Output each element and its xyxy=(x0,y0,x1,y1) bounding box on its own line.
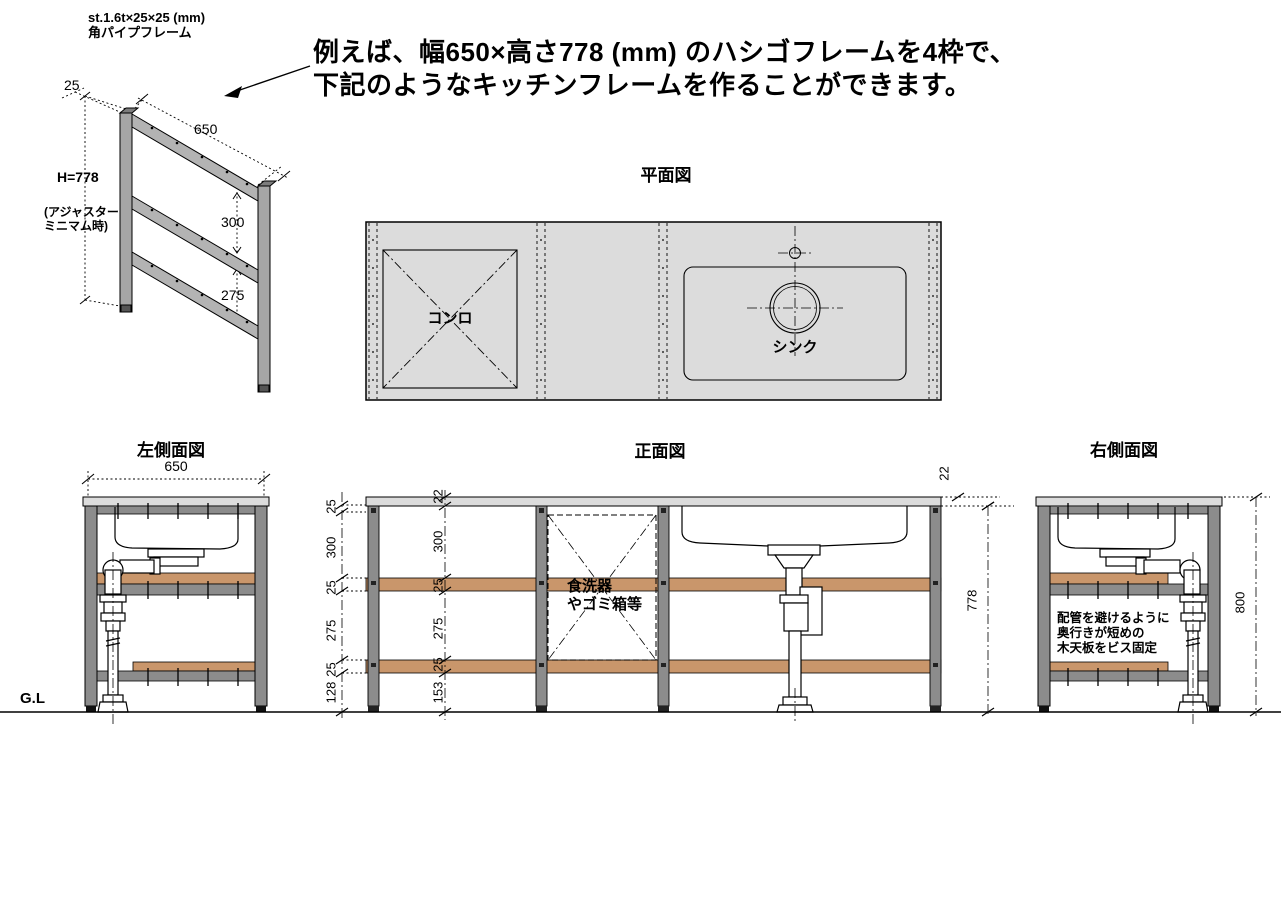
front-inner-153: 153 xyxy=(431,671,446,715)
counter-thickness-dim: 22 xyxy=(937,452,952,496)
sink-label: シンク xyxy=(772,336,817,357)
front-dim-275: 275 xyxy=(324,609,339,653)
iso-height-dim: H=778 xyxy=(57,169,99,185)
leader-arrow xyxy=(224,66,310,98)
iso-frame-drawing xyxy=(62,88,290,392)
piping-note: 配管を避けるように 奥行きが短めの 木天板をビス固定 xyxy=(1057,611,1170,656)
front-inner-25a: 25 xyxy=(431,564,446,608)
front-inner-22: 22 xyxy=(431,475,446,519)
front-dim-25a: 25 xyxy=(324,485,339,529)
front-dim-128: 128 xyxy=(324,671,339,715)
right-view-title: 右側面図 xyxy=(1090,436,1158,461)
front-dim-300: 300 xyxy=(324,526,339,570)
left-view-width-dim: 650 xyxy=(164,458,187,474)
heading-line1: 例えば、幅650×高さ778 (mm) のハシゴフレームを4枠で、 xyxy=(313,36,1016,69)
front-inner-300: 300 xyxy=(431,520,446,564)
plan-view-title: 平面図 xyxy=(641,161,692,186)
front-sink xyxy=(682,506,907,712)
pipe-spec-line2: 角パイプフレーム xyxy=(88,25,205,40)
left-side-view-drawing xyxy=(82,471,270,726)
heading-line2: 下記のようなキッチンフレームを作ることができます。 xyxy=(313,69,1016,102)
overall-height-dim: 800 xyxy=(1233,581,1248,625)
page-heading: 例えば、幅650×高さ778 (mm) のハシゴフレームを4枠で、 下記のような… xyxy=(313,36,1016,102)
iso-width-dim: 650 xyxy=(194,121,217,137)
pipe-spec-note: st.1.6t×25×25 (mm) 角パイプフレーム xyxy=(88,10,205,40)
front-view-title: 正面図 xyxy=(635,437,686,462)
iso-post-width-dim: 25 xyxy=(64,77,80,93)
frame-height-dim: 778 xyxy=(965,579,980,623)
pipe-spec-line1: st.1.6t×25×25 (mm) xyxy=(88,10,205,25)
kitchen-frame-drawing-page: st.1.6t×25×25 (mm) 角パイプフレーム 例えば、幅650×高さ7… xyxy=(0,0,1281,905)
iso-height-note: (アジャスター ミニマム時) xyxy=(44,205,119,233)
dishwasher-bay-label: 食洗器 やゴミ箱等 xyxy=(567,578,642,614)
front-dim-25b: 25 xyxy=(324,566,339,610)
stove-label: コンロ xyxy=(427,307,472,328)
iso-upper-span-dim: 300 xyxy=(221,214,244,230)
iso-lower-span-dim: 275 xyxy=(221,287,244,303)
ground-level-label: G.L xyxy=(20,690,45,707)
